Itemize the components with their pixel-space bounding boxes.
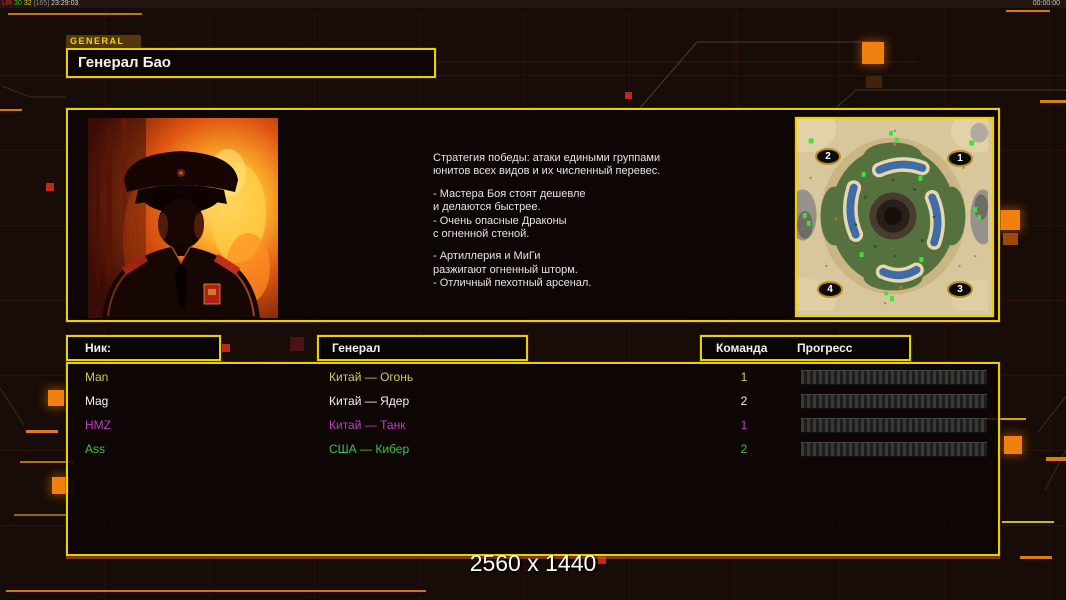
decor-line [6,590,426,592]
decor-square [48,390,64,406]
column-header-general: Генерал [317,335,528,361]
resolution-label: 2560 x 1440 [0,550,1066,577]
player-general: Китай — Ядер [329,390,409,412]
decor-square [866,76,882,88]
player-row: Man Китай — Огонь 1 [68,366,998,388]
overlay-clock: 23:29:03 [51,0,78,7]
overlay-num1: 30 [14,0,22,7]
decor-square [1003,233,1018,245]
map-start-position-3: 3 [947,281,973,298]
decor-square [222,344,230,352]
briefing-line: и делаются быстрее. [433,201,723,214]
progress-bar [801,370,987,385]
general-header-label: Генерал [332,337,380,359]
general-title-box: Генерал Бао [66,48,436,78]
general-info-panel: Стратегия победы: атаки едиными группами… [66,108,1000,322]
map-start-position-1: 1 [947,150,973,167]
progress-bar [801,418,987,433]
player-team: 1 [732,414,756,436]
player-general: Китай — Огонь [329,366,413,388]
team-header-label: Команда [716,337,767,359]
player-team: 2 [732,390,756,412]
overlay-bracket: [165] [34,0,50,7]
player-team: 2 [732,438,756,460]
general-portrait-image [88,118,278,318]
briefing-line: Стратегия победы: атаки едиными группами [433,152,723,165]
map-start-position-4: 4 [817,281,843,298]
performance-overlay: UR 30 32 [165] 23:29:03 [2,0,78,8]
player-nick: Mag [85,390,108,412]
general-name: Генерал Бао [78,50,171,76]
decor-square [290,337,304,351]
progress-header-label: Прогресс [797,337,852,359]
decor-line [1046,457,1066,461]
player-nick: Ass [85,438,105,460]
briefing-line: - Мастера Боя стоят дешевле [433,188,723,201]
decor-square [1004,436,1022,454]
player-row: Ass США — Кибер 2 [68,438,998,460]
match-timer: 00:00:00 [1033,0,1060,8]
progress-bar [801,442,987,457]
briefing-line: разжигают огненный шторм. [433,264,723,277]
progress-bar [801,394,987,409]
briefing-line [433,179,723,188]
column-header-nick: Ник: [66,335,221,361]
top-status-bar [0,0,1066,9]
briefing-line: - Отличный пехотный арсенал. [433,277,723,290]
map-preview: 2 1 4 3 [795,117,994,317]
tab-general: GENERAL [66,35,141,48]
decor-square [46,183,54,191]
overlay-tag: UR [2,0,12,7]
players-table-panel: Man Китай — Огонь 1 Mag Китай — Ядер 2 H… [66,362,1000,556]
column-header-team-progress: Команда Прогресс [700,335,911,361]
player-general: США — Кибер [329,438,409,460]
player-nick: HMZ [85,414,111,436]
decor-line [1040,100,1066,103]
decor-line [14,514,66,516]
player-row: HMZ Китай — Танк 1 [68,414,998,436]
nick-header-label: Ник: [85,337,111,359]
decor-square [1000,210,1020,230]
overlay-num2: 32 [24,0,32,7]
player-team: 1 [732,366,756,388]
decor-square [625,92,632,99]
decor-square [862,42,884,64]
player-row: Mag Китай — Ядер 2 [68,390,998,412]
decor-line [1006,10,1050,12]
decor-line [8,13,142,15]
decor-line [0,109,22,111]
briefing-line: юнитов всех видов и их численный перевес… [433,165,723,178]
briefing-line: с огненной стеной. [433,228,723,241]
decor-line [26,430,58,433]
map-start-position-2: 2 [815,148,841,165]
briefing-line: - Артиллерия и МиГи [433,250,723,263]
strategy-briefing: Стратегия победы: атаки едиными группами… [433,152,723,291]
general-portrait [88,118,278,318]
briefing-line: - Очень опасные Драконы [433,215,723,228]
player-general: Китай — Танк [329,414,405,436]
briefing-line [433,241,723,250]
decor-line [1002,521,1054,523]
player-nick: Man [85,366,108,388]
